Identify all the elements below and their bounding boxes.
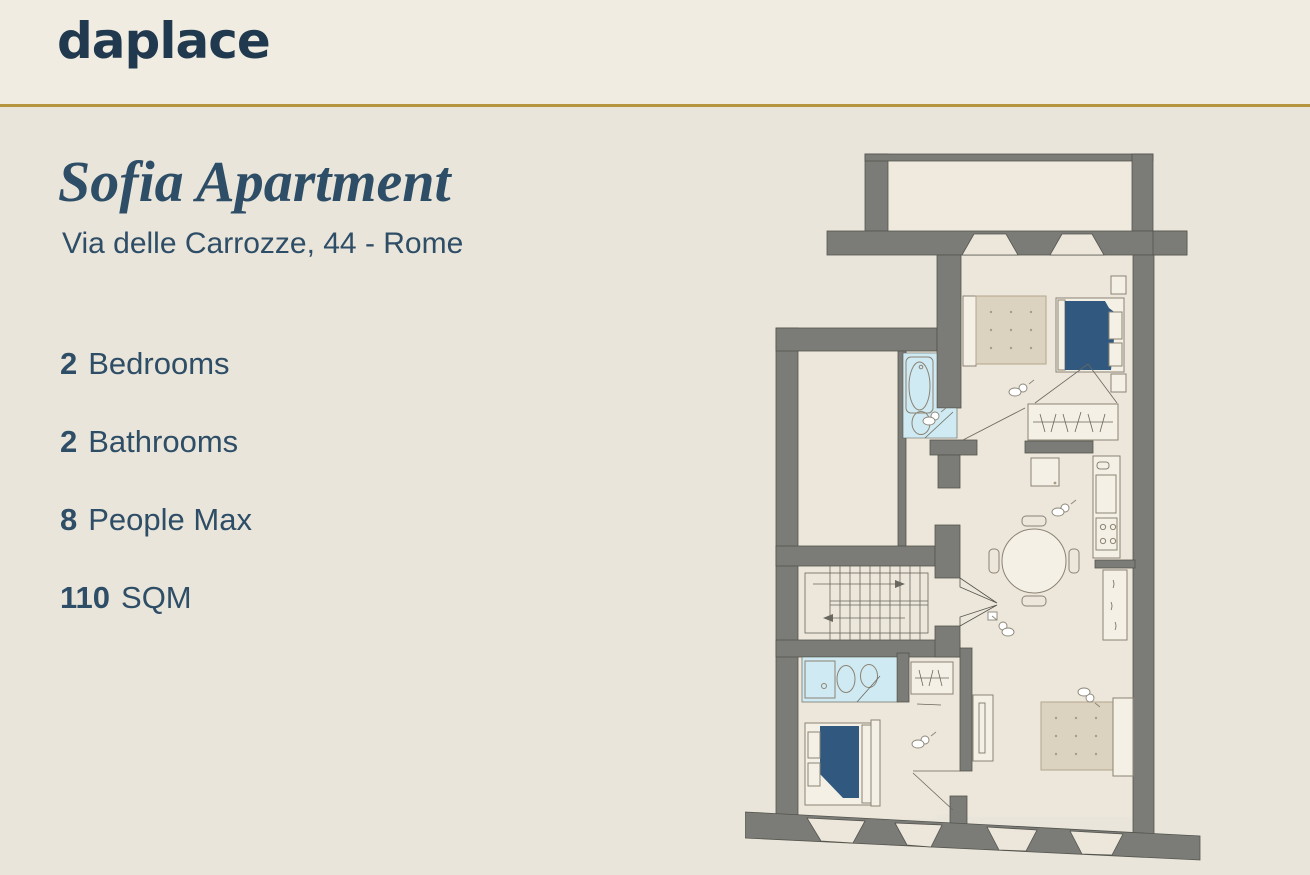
floor-plan-container bbox=[745, 146, 1210, 871]
bedroom2-divider-wall bbox=[960, 648, 972, 771]
feature-people-max: 8People Max bbox=[60, 502, 252, 543]
bedroom2-door-pier bbox=[950, 796, 967, 826]
table-top bbox=[1002, 529, 1066, 593]
staircase-top-wall bbox=[776, 546, 935, 566]
bed-2-pillow-b bbox=[808, 763, 820, 786]
spine-wall-cross bbox=[930, 440, 977, 455]
entry-wall-upper bbox=[935, 525, 960, 578]
spine-wall-mid bbox=[938, 455, 960, 488]
bedrooms-label: Bedrooms bbox=[88, 346, 229, 381]
feature-bathrooms: 2Bathrooms bbox=[60, 424, 252, 465]
north-wall-extension bbox=[1153, 231, 1187, 255]
daybed-1-frame bbox=[963, 296, 976, 366]
terrace-left-wall bbox=[865, 154, 888, 231]
nightstand-1b bbox=[1111, 374, 1126, 392]
listing-address: Via delle Carrozze, 44 - Rome bbox=[62, 227, 463, 261]
page-header: daplace bbox=[0, 0, 1310, 107]
bed-1-pillow-a bbox=[1109, 312, 1122, 339]
brand-logo: daplace bbox=[57, 12, 270, 70]
feature-sqm: 110SQM bbox=[60, 580, 252, 621]
spine-wall-upper bbox=[937, 255, 961, 408]
staircase-bottom-wall bbox=[776, 640, 960, 657]
bathrooms-count: 2 bbox=[60, 424, 77, 459]
page-title: Sofia Apartment bbox=[58, 148, 451, 215]
bathroom-2-floor bbox=[802, 657, 897, 702]
daybed-2-frame bbox=[1113, 698, 1133, 776]
people-max-count: 8 bbox=[60, 502, 77, 537]
bathrooms-label: Bathrooms bbox=[88, 424, 238, 459]
floor-plan bbox=[745, 146, 1210, 871]
tv-console bbox=[973, 695, 993, 761]
feature-list: 2Bedrooms 2Bathrooms 8People Max 110SQM bbox=[60, 346, 252, 658]
sideboard-knob bbox=[1054, 482, 1057, 485]
bathroom2-right-wall bbox=[897, 653, 909, 702]
bedrooms-count: 2 bbox=[60, 346, 77, 381]
west-wall bbox=[776, 328, 798, 820]
bed-2-rail bbox=[871, 720, 880, 806]
people-max-label: People Max bbox=[88, 502, 252, 537]
feature-bedrooms: 2Bedrooms bbox=[60, 346, 252, 387]
kitchen-divider-wall bbox=[1095, 560, 1135, 568]
sqm-label: SQM bbox=[121, 580, 192, 615]
bed-2-pillow-a bbox=[808, 732, 820, 758]
nightstand-1a bbox=[1111, 276, 1126, 294]
sqm-count: 110 bbox=[60, 580, 110, 615]
east-wall bbox=[1133, 255, 1154, 835]
terrace-right-wall bbox=[1132, 154, 1153, 231]
storage-top-wall bbox=[776, 328, 937, 351]
bathroom-2 bbox=[802, 657, 897, 702]
bed-1-pillow-b bbox=[1109, 343, 1122, 366]
entry-wall-lower bbox=[935, 626, 960, 657]
terrace-top-wall bbox=[865, 154, 1153, 161]
listing-page: { "brand": { "logo_text": "daplace" }, "… bbox=[0, 0, 1310, 875]
bedroom1-south-wall bbox=[1025, 441, 1093, 453]
